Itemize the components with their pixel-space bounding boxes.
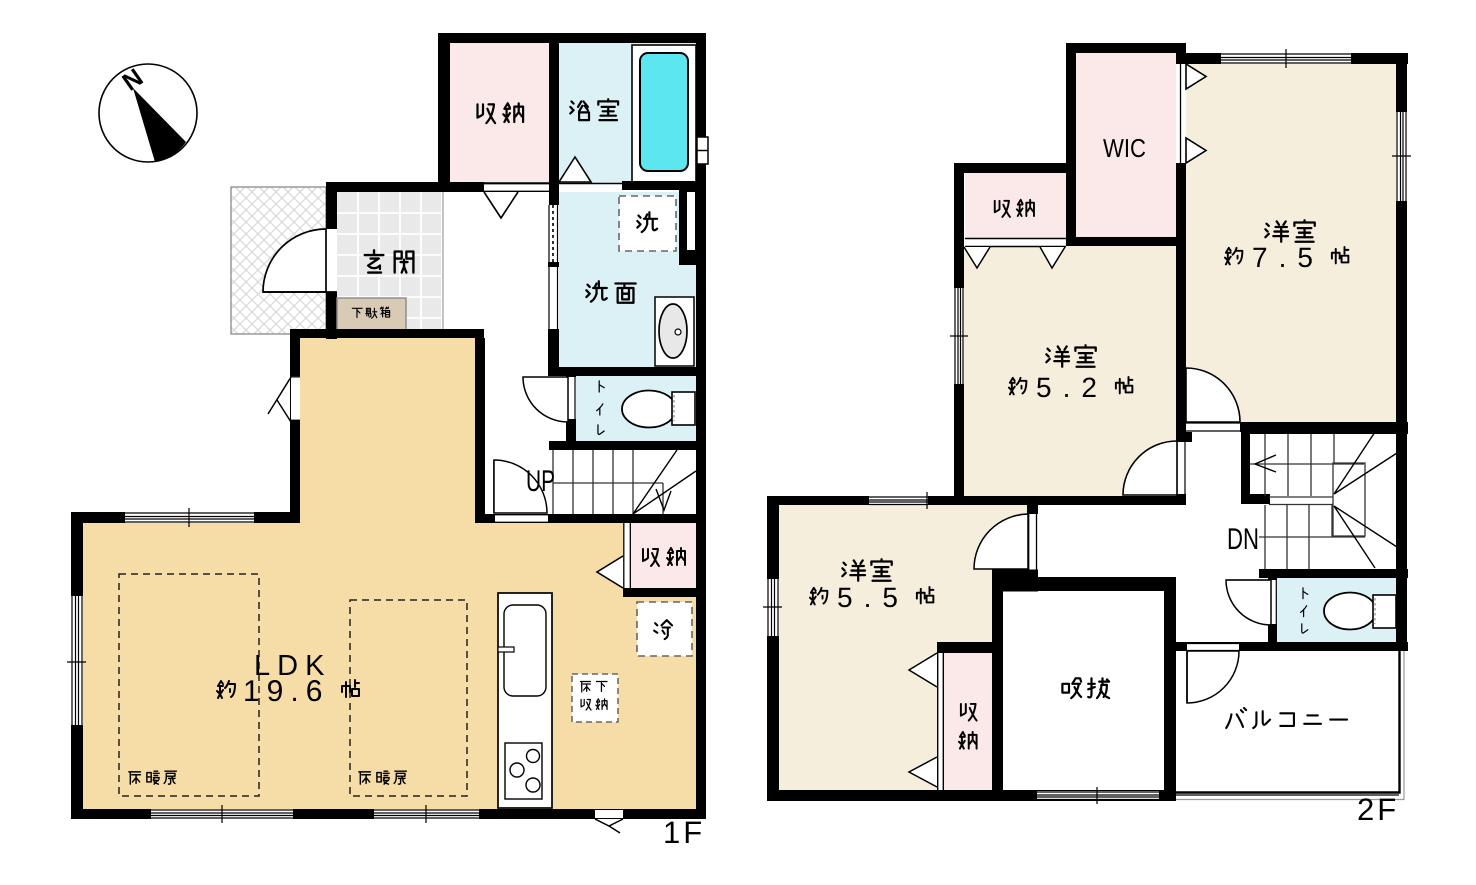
svg-text:WIC: WIC <box>1103 133 1146 163</box>
svg-text:2F: 2F <box>1357 792 1399 827</box>
svg-text:19.6: 19.6 <box>243 675 329 708</box>
svg-text:1F: 1F <box>663 815 705 850</box>
svg-text:DN: DN <box>1227 523 1259 556</box>
svg-text:5.5: 5.5 <box>837 582 909 613</box>
svg-text:5.2: 5.2 <box>1036 372 1108 403</box>
svg-text:UP: UP <box>526 465 555 498</box>
svg-text:7.5: 7.5 <box>1252 242 1324 273</box>
